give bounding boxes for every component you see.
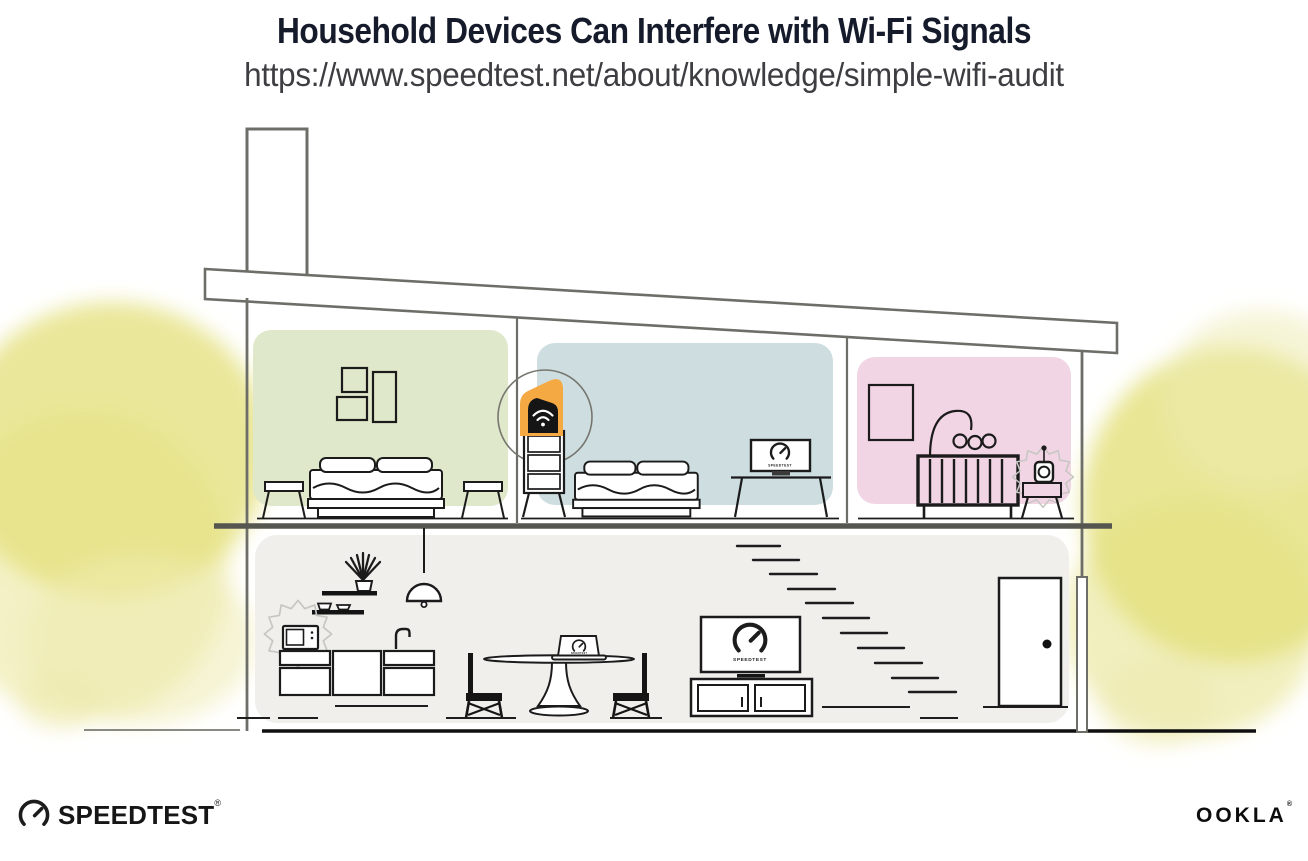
tv-stand (737, 674, 765, 678)
microwave (283, 626, 318, 649)
monitor-screen-brand: SPEEDTEST (768, 464, 792, 468)
left-foliage (0, 302, 270, 730)
house-cross-section-illustration: SPEEDTEST (0, 0, 1308, 861)
door-knob (1043, 640, 1052, 649)
bed-middle (573, 462, 699, 517)
monitor-lens (1039, 467, 1050, 478)
table-base (530, 707, 588, 716)
header: Household Devices Can Interfere with Wi-… (0, 0, 1308, 94)
tv-console (691, 679, 812, 716)
crib-bars (930, 459, 1002, 503)
source-url: https://www.speedtest.net/about/knowledg… (33, 56, 1276, 94)
front-door (999, 578, 1061, 706)
tv-screen-brand: SPEEDTEST (733, 657, 767, 663)
registered-mark: ® (214, 798, 221, 808)
speedtest-gauge-icon (18, 799, 50, 831)
antenna-tip (1041, 445, 1046, 450)
shelf (312, 610, 364, 615)
page-title: Household Devices Can Interfere with Wi-… (78, 10, 1229, 52)
downspout (1077, 577, 1087, 732)
infographic-page: SPEEDTEST (0, 0, 1308, 861)
tv: SPEEDTEST (701, 617, 800, 678)
speedtest-wordmark: SPEEDTEST (58, 800, 214, 830)
ookla-logo: OOKLA® (1196, 804, 1292, 828)
ookla-wordmark: OOKLA (1196, 804, 1287, 827)
chimney (247, 129, 307, 282)
shelf (322, 591, 377, 596)
registered-mark: ® (1287, 801, 1292, 808)
speedtest-logo: SPEEDTEST® (18, 799, 221, 831)
monitor-stand (772, 471, 790, 476)
kitchen-cabinets (280, 651, 434, 695)
